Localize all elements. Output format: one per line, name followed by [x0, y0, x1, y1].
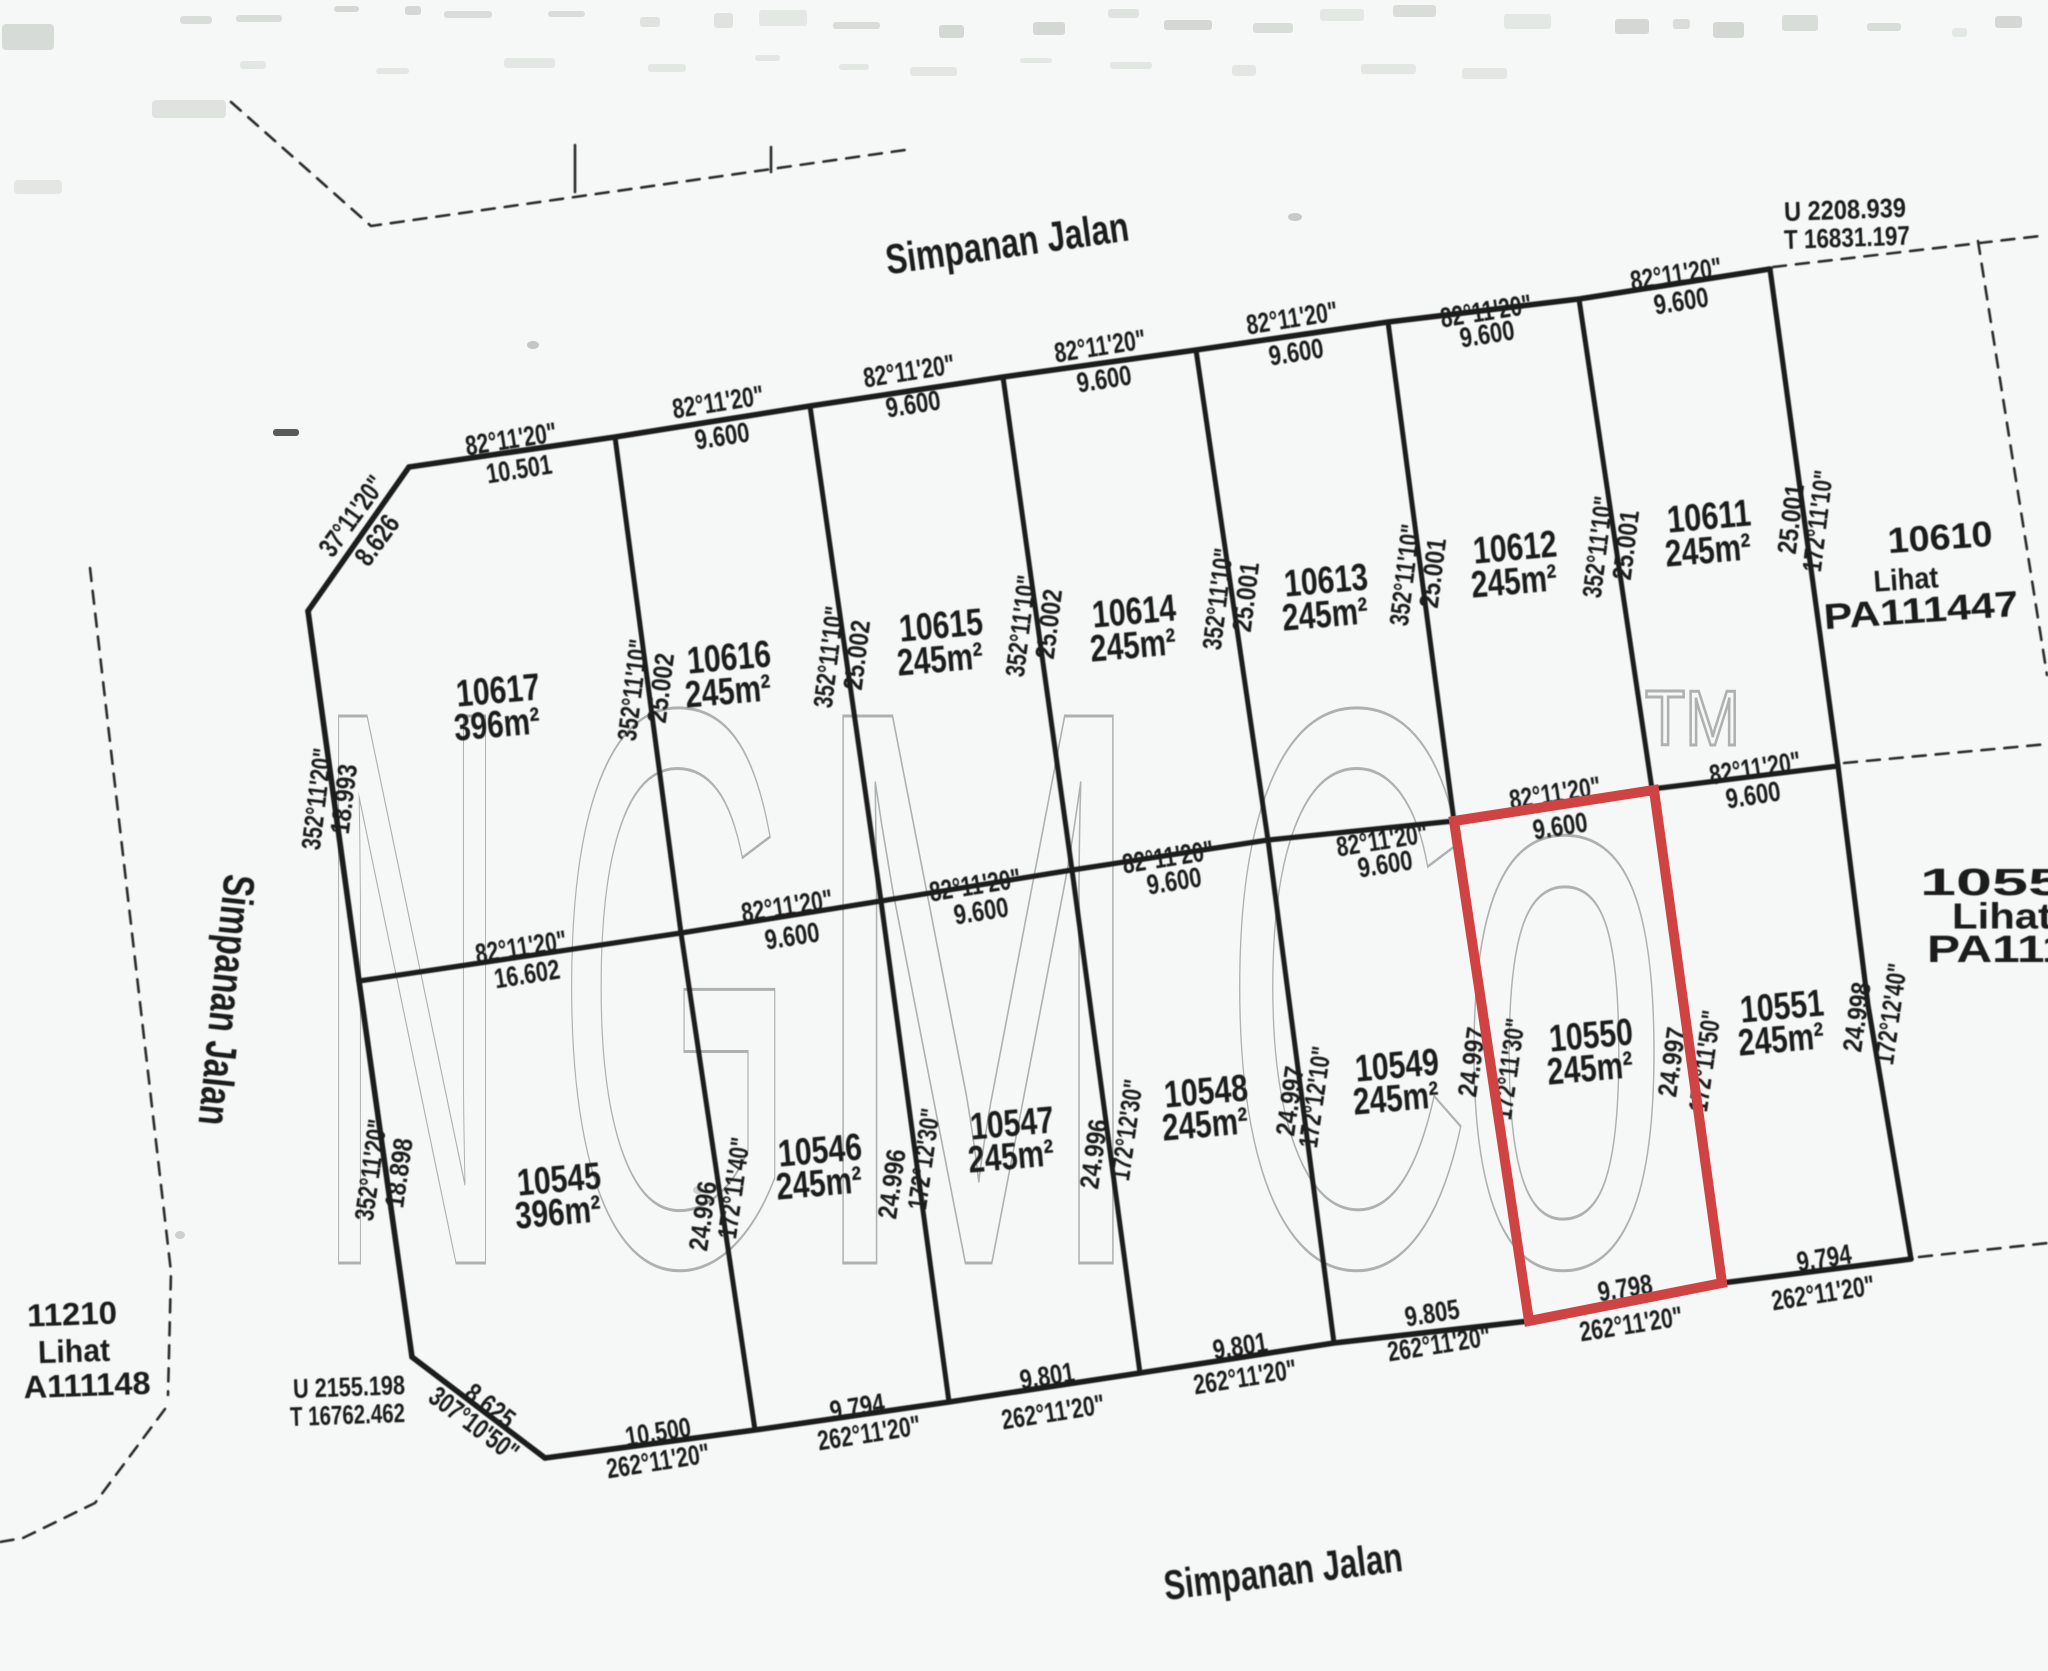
- svg-text:245m²: 245m²: [1088, 621, 1177, 670]
- svg-text:A111148: A111148: [23, 1365, 151, 1405]
- svg-text:245m²: 245m²: [1736, 1015, 1825, 1064]
- svg-text:245m²: 245m²: [1663, 526, 1752, 575]
- svg-text:245m²: 245m²: [774, 1159, 863, 1208]
- svg-text:PA1114: PA1114: [1927, 929, 2048, 971]
- svg-text:245m²: 245m²: [683, 667, 772, 716]
- svg-text:245m²: 245m²: [1545, 1044, 1634, 1093]
- svg-text:245m²: 245m²: [1160, 1100, 1249, 1149]
- svg-text:396m²: 396m²: [452, 700, 541, 749]
- svg-text:245m²: 245m²: [966, 1132, 1055, 1181]
- svg-text:10610: 10610: [1886, 513, 1994, 561]
- svg-text:11210: 11210: [26, 1294, 117, 1333]
- svg-text:396m²: 396m²: [513, 1188, 602, 1237]
- svg-text:T 16762.462: T 16762.462: [289, 1398, 405, 1432]
- svg-text:Lihat: Lihat: [37, 1332, 111, 1371]
- svg-text:245m²: 245m²: [1469, 557, 1558, 606]
- svg-text:245m²: 245m²: [1351, 1074, 1440, 1123]
- svg-text:TM: TM: [1645, 674, 1740, 762]
- svg-text:245m²: 245m²: [895, 635, 984, 684]
- svg-text:245m²: 245m²: [1280, 590, 1369, 639]
- svg-text:T 16831.197: T 16831.197: [1783, 221, 1910, 255]
